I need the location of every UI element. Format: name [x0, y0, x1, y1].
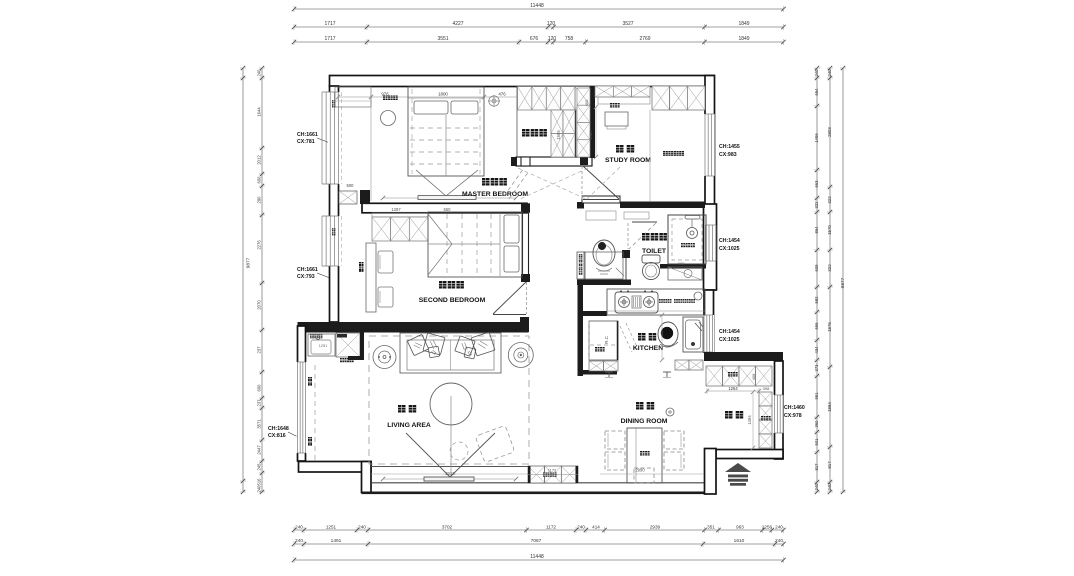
svg-text:3702: 3702 — [442, 525, 453, 530]
svg-text:398: 398 — [763, 386, 770, 391]
svg-text:CX:983: CX:983 — [719, 152, 737, 158]
svg-text:2276: 2276 — [257, 240, 262, 250]
svg-text:240: 240 — [295, 525, 303, 530]
svg-text:1849: 1849 — [738, 36, 749, 42]
svg-text:3551: 3551 — [437, 36, 448, 42]
svg-text:240: 240 — [775, 538, 783, 544]
svg-text:663: 663 — [814, 180, 819, 188]
svg-text:11448: 11448 — [530, 554, 544, 560]
svg-text:CH:1661: CH:1661 — [297, 267, 318, 273]
svg-text:240: 240 — [295, 538, 303, 544]
svg-text:11448: 11448 — [530, 3, 544, 9]
svg-text:9877: 9877 — [840, 277, 846, 288]
svg-text:120: 120 — [547, 21, 556, 27]
svg-text:237: 237 — [257, 346, 262, 354]
svg-text:1251: 1251 — [326, 525, 337, 530]
svg-text:666: 666 — [814, 322, 819, 330]
svg-text:1610: 1610 — [734, 538, 745, 544]
svg-text:650: 650 — [444, 207, 452, 212]
svg-text:3571: 3571 — [257, 419, 262, 429]
svg-text:240: 240 — [257, 69, 262, 77]
svg-text:1717: 1717 — [324, 36, 335, 42]
svg-text:240: 240 — [814, 483, 819, 491]
svg-text:600: 600 — [257, 176, 262, 184]
svg-text:1251: 1251 — [319, 344, 327, 348]
svg-text:CH:1454: CH:1454 — [719, 238, 740, 244]
svg-text:240: 240 — [257, 485, 262, 493]
svg-text:CH:1455: CH:1455 — [719, 144, 740, 150]
svg-text:450: 450 — [584, 99, 589, 106]
svg-text:245: 245 — [257, 463, 262, 471]
svg-text:240: 240 — [814, 69, 819, 77]
svg-text:951: 951 — [814, 392, 819, 400]
svg-text:1172: 1172 — [548, 468, 557, 473]
svg-text:434: 434 — [814, 346, 819, 354]
svg-text:R.C: R.C — [604, 335, 609, 344]
svg-text:1496: 1496 — [814, 133, 819, 143]
svg-text:1800: 1800 — [438, 92, 448, 97]
svg-text:1085: 1085 — [588, 130, 593, 140]
svg-text:CH:1454: CH:1454 — [719, 329, 740, 335]
svg-text:7067: 7067 — [531, 538, 542, 544]
svg-text:501: 501 — [814, 438, 819, 446]
svg-text:817: 817 — [827, 461, 832, 469]
svg-text:MASTER BEDROOM: MASTER BEDROOM — [462, 191, 528, 198]
svg-text:676: 676 — [530, 36, 539, 42]
svg-text:817: 817 — [814, 463, 819, 471]
svg-text:963: 963 — [736, 525, 744, 530]
svg-text:1256: 1256 — [762, 525, 773, 530]
svg-text:240: 240 — [775, 525, 783, 530]
svg-text:3527: 3527 — [622, 21, 633, 27]
svg-text:LIVING AREA: LIVING AREA — [387, 422, 431, 429]
svg-text:CX:1025: CX:1025 — [719, 246, 740, 252]
svg-text:240: 240 — [827, 483, 832, 491]
svg-text:CH:1460: CH:1460 — [784, 405, 805, 411]
svg-text:414: 414 — [592, 525, 600, 530]
svg-text:SECOND BEDROOM: SECOND BEDROOM — [419, 297, 486, 304]
svg-text:900: 900 — [678, 261, 685, 266]
svg-text:322: 322 — [827, 196, 832, 204]
svg-text:240: 240 — [827, 69, 832, 77]
svg-text:373: 373 — [814, 364, 819, 372]
svg-text:1565: 1565 — [556, 130, 561, 140]
svg-text:476: 476 — [498, 92, 506, 97]
svg-text:CX:781: CX:781 — [297, 139, 315, 145]
svg-text:DINING ROOM: DINING ROOM — [621, 418, 668, 425]
svg-text:360: 360 — [814, 420, 819, 428]
svg-text:2769: 2769 — [639, 36, 650, 42]
svg-text:1884: 1884 — [827, 402, 832, 412]
svg-text:1264: 1264 — [728, 386, 738, 391]
svg-text:KITCHEN: KITCHEN — [633, 345, 663, 352]
svg-text:9877: 9877 — [246, 257, 252, 268]
svg-text:516: 516 — [257, 478, 262, 486]
svg-text:CX:816: CX:816 — [268, 433, 286, 439]
svg-text:2218: 2218 — [445, 471, 455, 476]
svg-text:500: 500 — [347, 183, 355, 188]
svg-text:1876: 1876 — [827, 322, 832, 332]
svg-text:TOILET: TOILET — [642, 248, 667, 255]
svg-text:240: 240 — [358, 525, 366, 530]
svg-text:351: 351 — [707, 525, 715, 530]
svg-text:2070: 2070 — [257, 300, 262, 310]
svg-text:609: 609 — [814, 264, 819, 272]
svg-text:2990: 2990 — [635, 468, 645, 473]
svg-text:237: 237 — [257, 399, 262, 407]
svg-text:2939: 2939 — [650, 525, 661, 530]
svg-text:CX:793: CX:793 — [297, 274, 315, 280]
svg-text:1644: 1644 — [257, 107, 262, 117]
svg-text:1287: 1287 — [391, 207, 401, 212]
svg-text:290: 290 — [257, 196, 262, 204]
svg-text:1494: 1494 — [747, 415, 752, 425]
svg-text:2803: 2803 — [827, 127, 832, 137]
svg-text:CH:1648: CH:1648 — [268, 426, 289, 432]
svg-text:1570: 1570 — [827, 225, 832, 235]
svg-text:120: 120 — [548, 36, 557, 42]
svg-text:408: 408 — [751, 373, 756, 380]
svg-text:654: 654 — [814, 88, 819, 96]
svg-text:322: 322 — [827, 264, 832, 272]
svg-text:322: 322 — [814, 201, 819, 209]
svg-text:CH:1661: CH:1661 — [297, 132, 318, 138]
svg-text:2447: 2447 — [257, 445, 262, 455]
svg-text:864: 864 — [814, 226, 819, 234]
svg-text:STUDY ROOM: STUDY ROOM — [605, 157, 651, 164]
svg-text:240: 240 — [577, 525, 585, 530]
svg-text:1849: 1849 — [738, 21, 749, 27]
svg-text:CX:978: CX:978 — [784, 413, 802, 419]
svg-text:2012: 2012 — [257, 155, 262, 165]
svg-text:1172: 1172 — [546, 525, 556, 530]
svg-text:1717: 1717 — [324, 21, 335, 27]
svg-text:4227: 4227 — [452, 21, 463, 27]
svg-text:1491: 1491 — [331, 538, 342, 544]
svg-text:600: 600 — [257, 384, 262, 392]
svg-text:758: 758 — [565, 36, 574, 42]
svg-text:CX:1025: CX:1025 — [719, 337, 740, 343]
svg-text:582: 582 — [814, 296, 819, 304]
